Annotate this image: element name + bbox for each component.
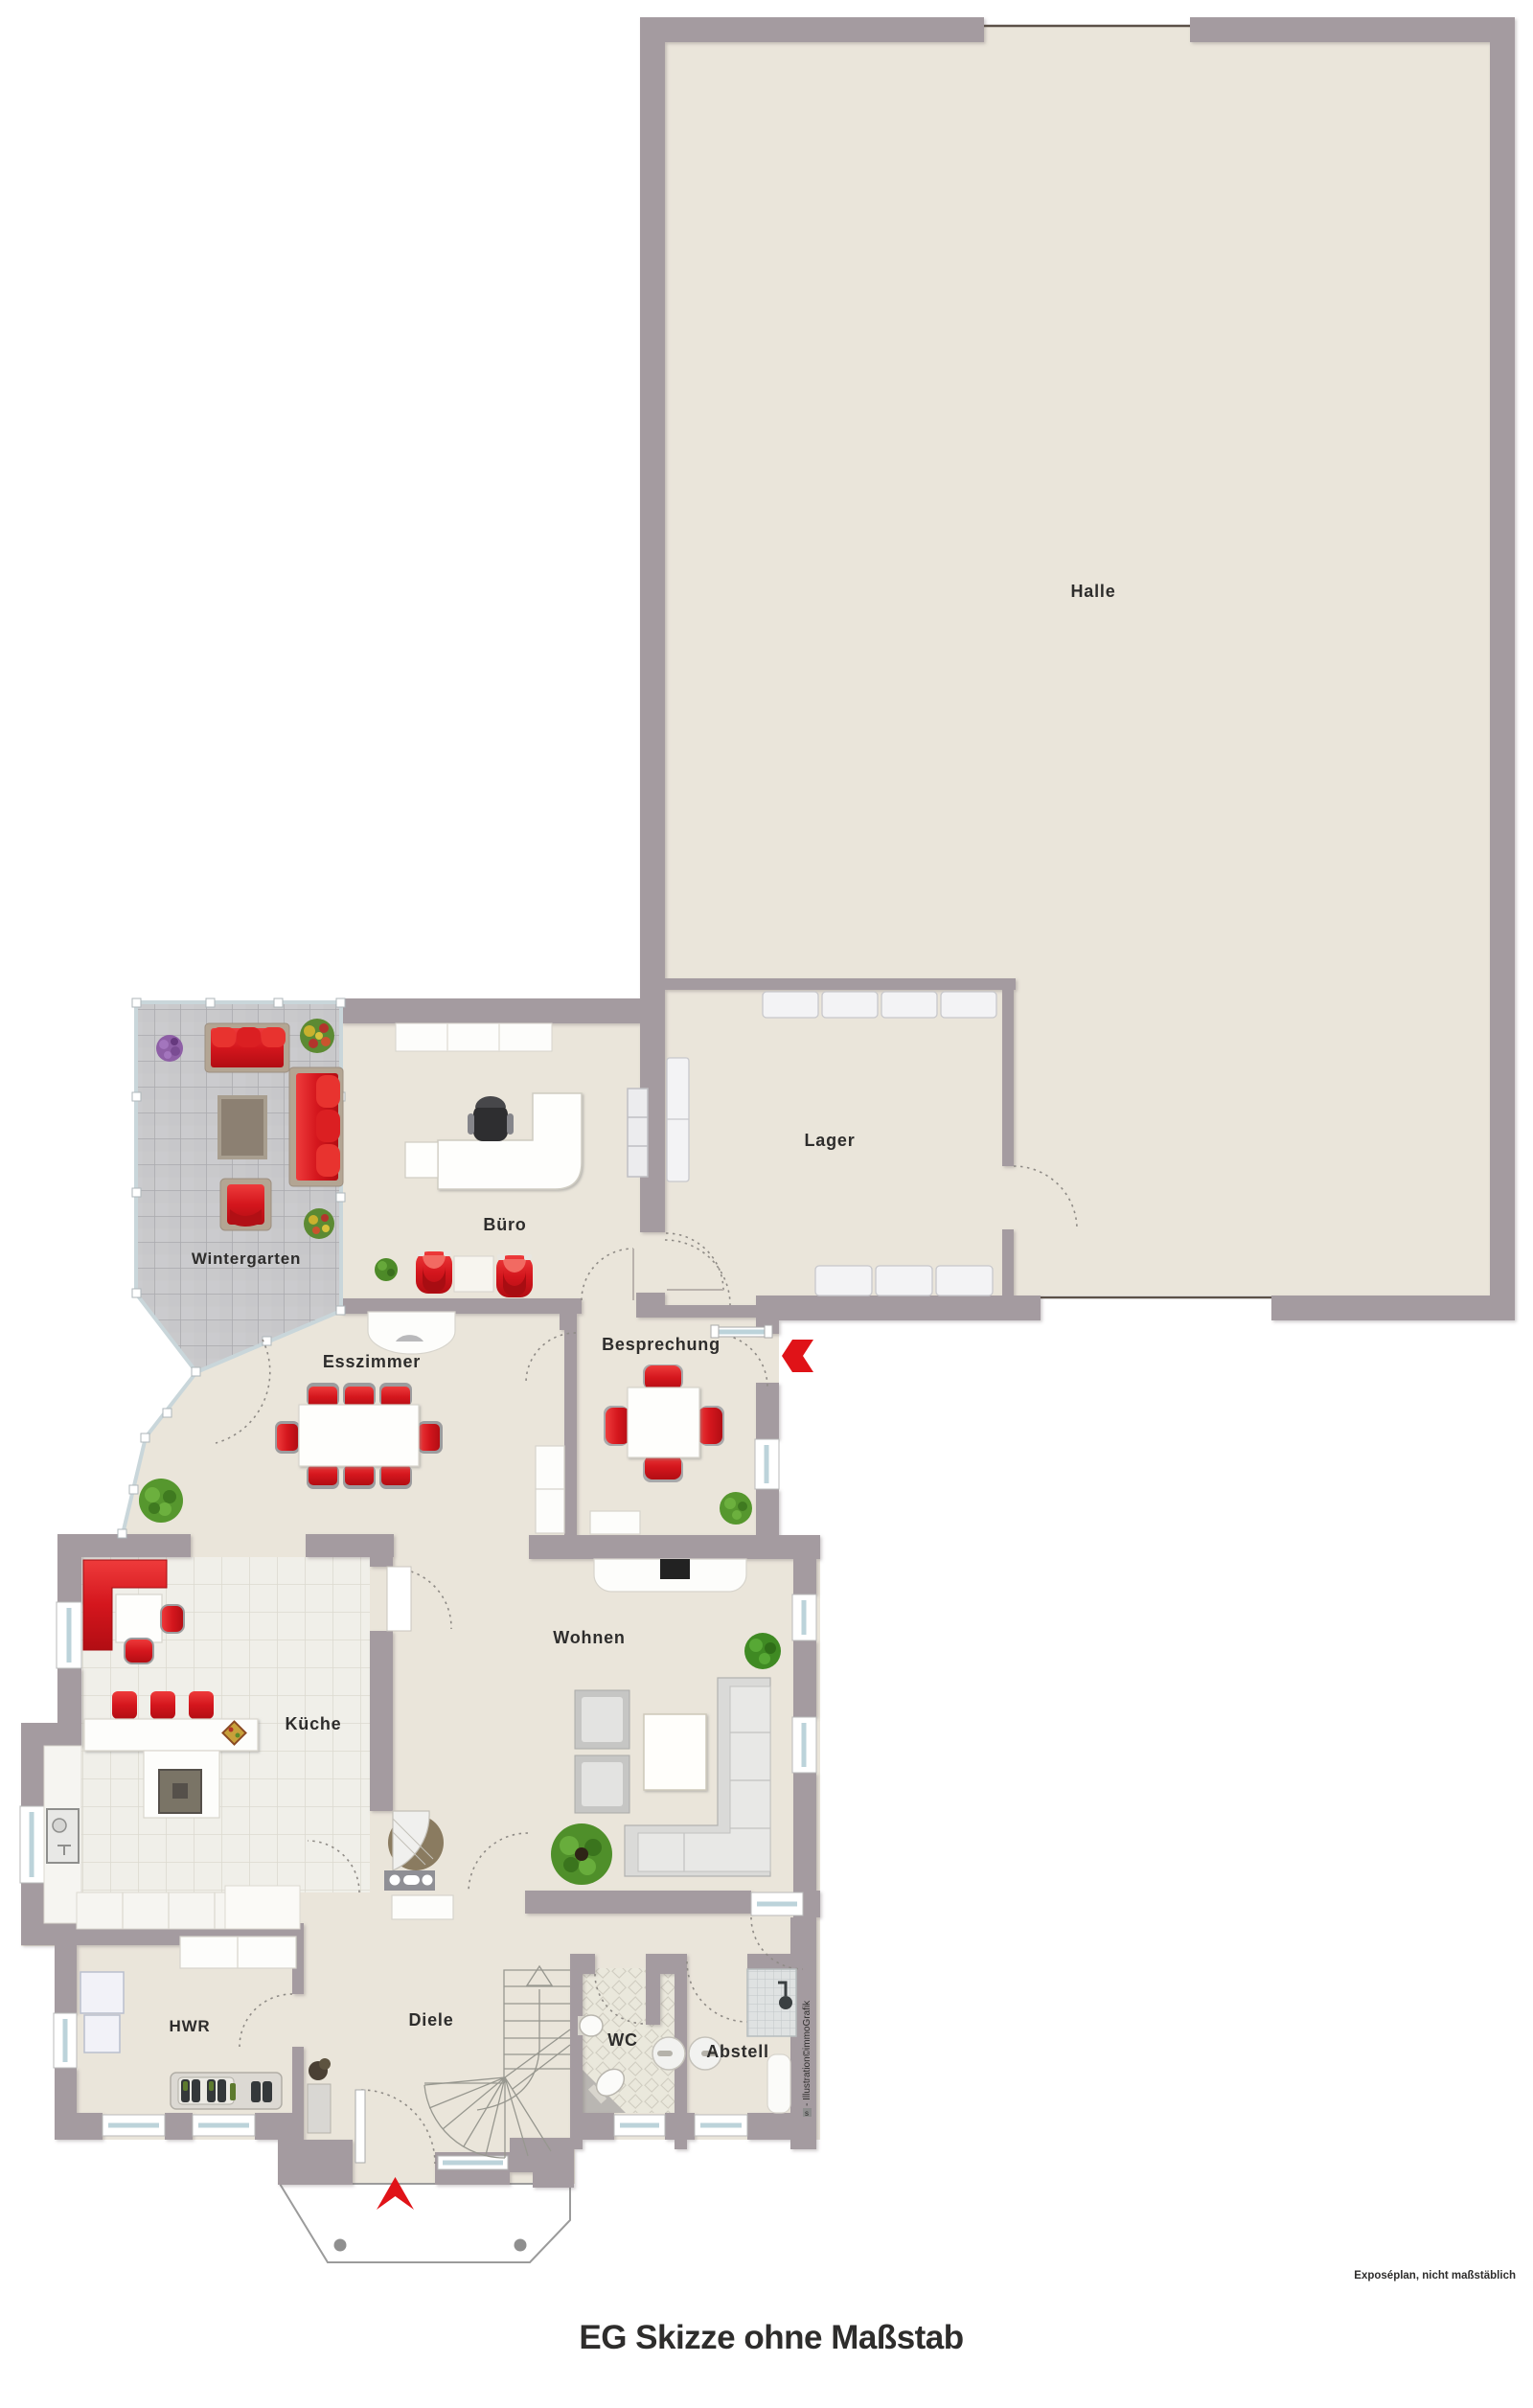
svg-text:Lager: Lager (804, 1131, 855, 1150)
svg-text:Diele: Diele (408, 2010, 453, 2030)
svg-text:HWR: HWR (170, 2017, 211, 2035)
svg-text:Küche: Küche (285, 1714, 341, 1733)
svg-text:Halle: Halle (1070, 582, 1115, 601)
svg-text:Wintergarten: Wintergarten (192, 1250, 301, 1268)
svg-text:- Illustration©immoGrafik: - Illustration©immoGrafik (802, 2000, 812, 2106)
svg-text:Wohnen: Wohnen (553, 1628, 625, 1647)
svg-text:EG Skizze ohne Maßstab: EG Skizze ohne Maßstab (579, 2319, 963, 2356)
svg-text:Abstell: Abstell (706, 2042, 769, 2061)
svg-text:Exposéplan, nicht maßstäblich: Exposéplan, nicht maßstäblich (1354, 2270, 1516, 2282)
svg-text:WC: WC (607, 2030, 638, 2050)
svg-text:Besprechung: Besprechung (602, 1335, 721, 1354)
svg-text:Büro: Büro (483, 1215, 526, 1234)
svg-text:s: s (805, 2109, 809, 2118)
svg-text:Esszimmer: Esszimmer (323, 1352, 421, 1371)
